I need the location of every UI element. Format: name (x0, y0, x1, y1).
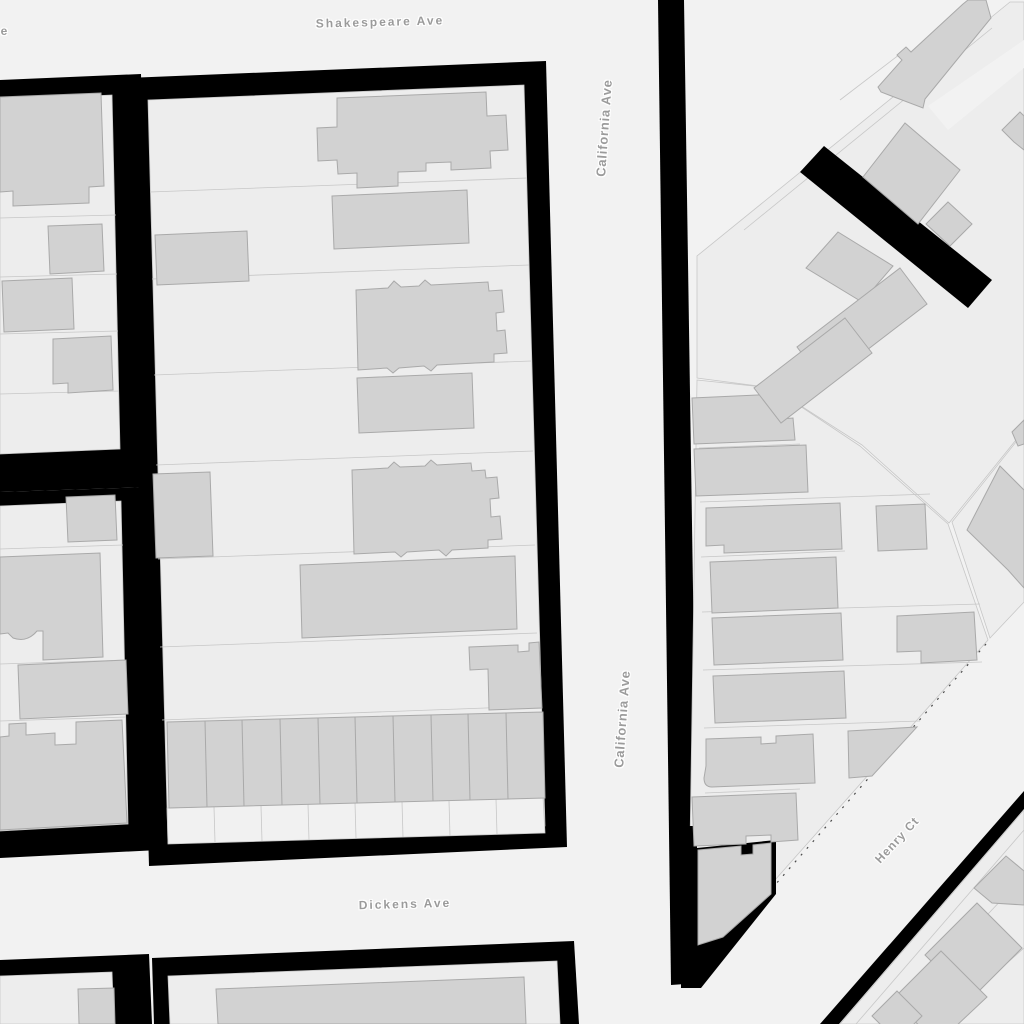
building (356, 280, 507, 373)
building (2, 278, 74, 332)
building (357, 373, 474, 433)
building (153, 472, 213, 558)
building (48, 224, 104, 274)
building (704, 734, 815, 787)
building (66, 495, 117, 542)
building (712, 613, 843, 665)
building (300, 556, 517, 638)
building (155, 231, 249, 285)
building (332, 190, 469, 249)
map-layers (0, 0, 1024, 1024)
building (18, 660, 128, 719)
building (713, 671, 846, 723)
map-canvas[interactable]: Shakespeare Ave California Ave Californi… (0, 0, 1024, 1024)
street-label-edge-fragment: e (1, 24, 8, 38)
building (694, 445, 808, 496)
street-label-dickens-ave: Dickens Ave (359, 896, 452, 912)
building (876, 504, 927, 551)
building (710, 557, 838, 613)
building (848, 727, 917, 778)
building (692, 793, 798, 846)
building (352, 460, 502, 557)
building (0, 93, 104, 206)
building (706, 503, 842, 553)
building (78, 988, 115, 1024)
